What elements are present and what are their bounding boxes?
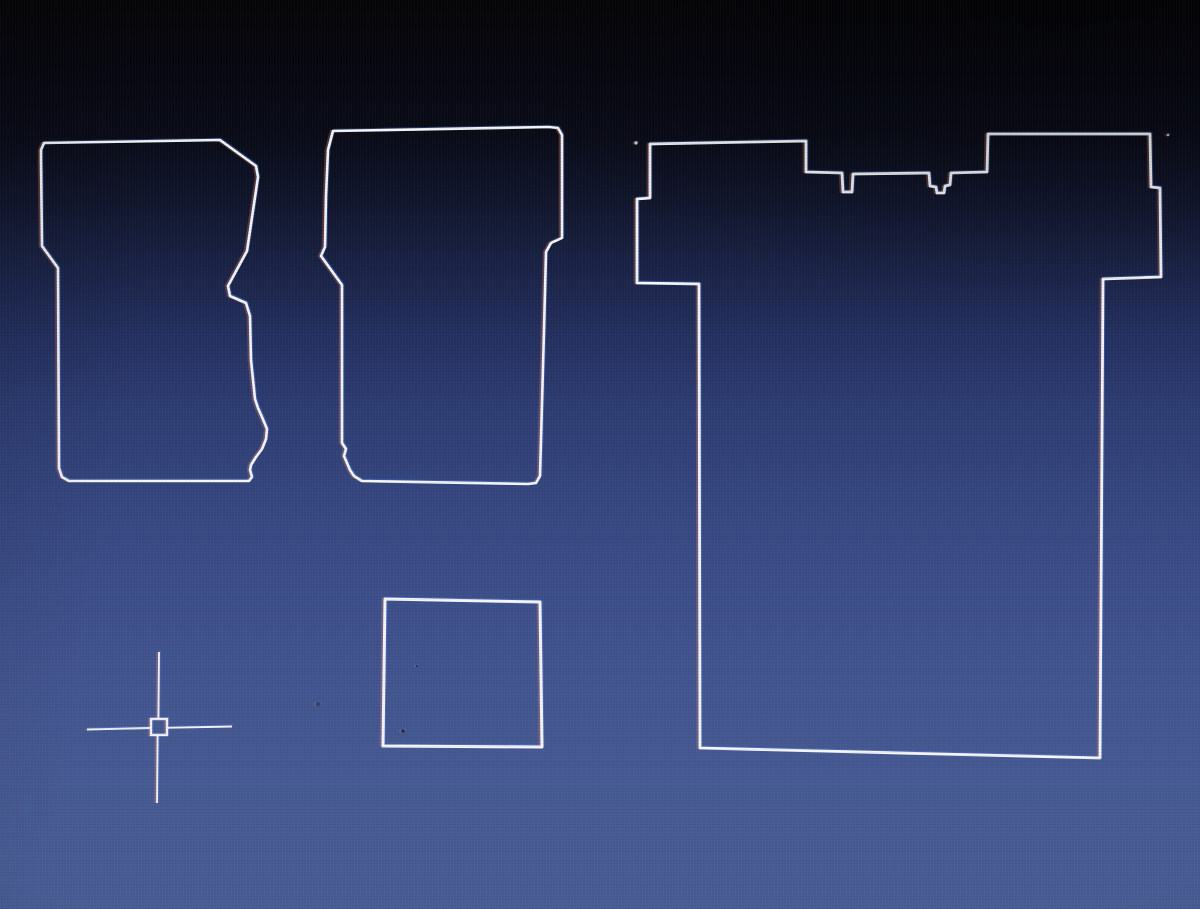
crosshair-h-right <box>167 727 232 728</box>
crosshair-v-top <box>158 652 159 719</box>
small-square-outline[interactable] <box>383 599 542 747</box>
crosshair-cursor <box>87 652 232 803</box>
stray-dot-right <box>1167 134 1170 137</box>
dust-speck-mid <box>416 665 418 667</box>
crosshair-h-left <box>87 728 151 730</box>
middle-mat-outline[interactable] <box>321 127 562 484</box>
photo-specks <box>316 134 1169 733</box>
dust-smudge-left-of-square <box>316 702 320 706</box>
left-mat-outline[interactable] <box>41 140 267 481</box>
right-mat-outline[interactable] <box>637 134 1161 758</box>
crosshair-v-bottom <box>157 735 158 803</box>
drawing-canvas <box>0 0 1200 909</box>
stray-dot-left <box>634 141 637 144</box>
pickbox <box>151 719 167 735</box>
cad-viewport <box>0 0 1200 909</box>
dust-speck-in-square <box>401 729 404 732</box>
shapes-layer <box>41 127 1161 758</box>
